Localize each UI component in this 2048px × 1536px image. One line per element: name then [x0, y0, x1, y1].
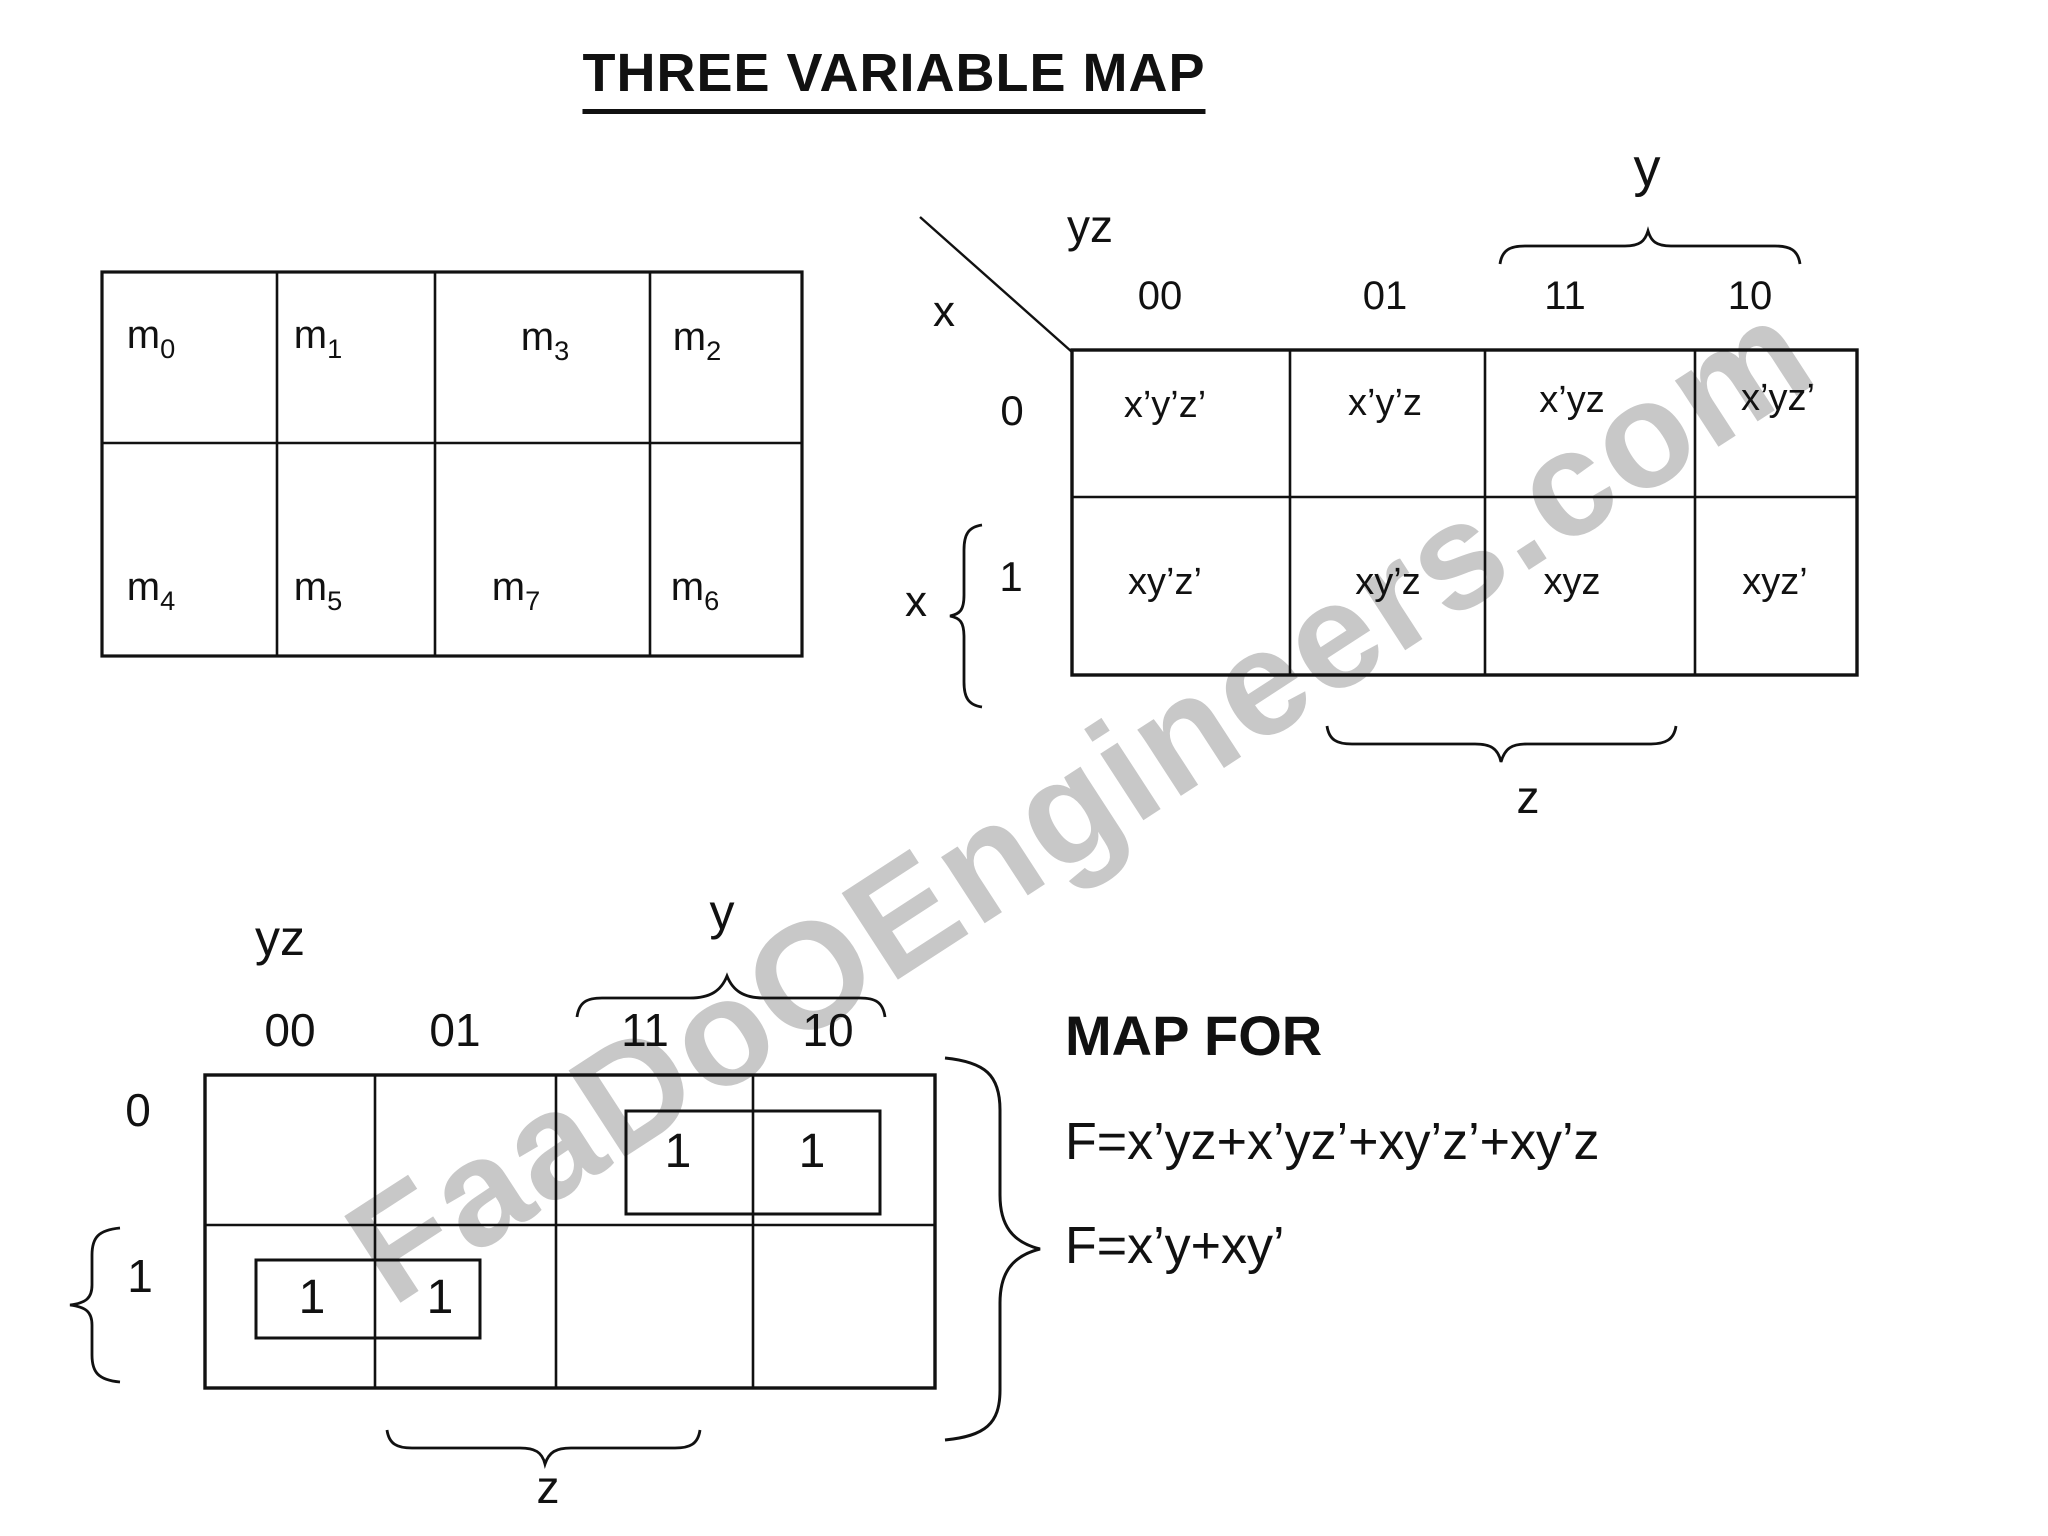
top-kmap-cell-001: x’y’z [1348, 384, 1422, 422]
top-x-brace [950, 525, 982, 707]
minterm-sub: 3 [554, 335, 569, 366]
minterm-m0: m0 [127, 315, 175, 355]
top-kmap-cell-000: x’y’z’ [1124, 386, 1206, 424]
top-z-brace [1327, 726, 1676, 762]
minterm-base: m [294, 565, 327, 609]
top-kmap-row-0: 0 [1000, 390, 1023, 432]
bottom-kmap-one-100: 1 [299, 1274, 326, 1322]
bottom-kmap-row-0: 0 [125, 1087, 151, 1133]
minterm-m6: m6 [671, 567, 719, 607]
minterm-m1: m1 [294, 315, 342, 355]
bottom-kmap-z-brace-label: z [537, 1464, 560, 1510]
top-kmap-cell-011: x’yz [1539, 381, 1604, 419]
top-kmap-col-00: 00 [1138, 276, 1183, 316]
top-kmap-cell-101: xy’z [1355, 563, 1420, 601]
top-kmap-x-header-label: x [933, 290, 955, 334]
top-y-brace [1500, 231, 1800, 264]
top-kmap-z-brace-label: z [1517, 774, 1540, 820]
bottom-kmap-one-010: 1 [799, 1128, 826, 1176]
minterm-sub: 6 [704, 585, 719, 616]
minterm-base: m [671, 565, 704, 609]
bottom-kmap-one-011: 1 [665, 1128, 692, 1176]
minterm-m2: m2 [673, 317, 721, 357]
bottom-kmap-col-10: 10 [802, 1007, 853, 1053]
slide-three-variable-map: FaaDoOEngineers.com [0, 0, 2048, 1536]
top-kmap-cell-010: x’yz’ [1741, 379, 1815, 417]
result-brace [945, 1058, 1040, 1440]
bottom-kmap-corner-label: yz [255, 913, 305, 963]
minterm-sub: 4 [160, 585, 175, 616]
minterm-sub: 1 [327, 333, 342, 364]
minterm-sub: 5 [327, 585, 342, 616]
page-title: THREE VARIABLE MAP [582, 42, 1205, 114]
minterm-m3: m3 [521, 317, 569, 357]
top-kmap-cell-111: xyz [1544, 563, 1601, 601]
bottom-kmap-one-101: 1 [427, 1274, 454, 1322]
minterm-m7: m7 [492, 567, 540, 607]
bottom-kmap-col-00: 00 [264, 1007, 315, 1053]
top-kmap-y-brace-label: y [1634, 141, 1661, 195]
bottom-kmap-col-11: 11 [621, 1007, 669, 1053]
top-kmap-cell-100: xy’z’ [1128, 563, 1202, 601]
minterm-sub: 0 [160, 333, 175, 364]
minterm-base: m [521, 315, 554, 359]
bottom-x-brace [70, 1228, 120, 1382]
top-kmap-col-01: 01 [1363, 276, 1408, 316]
top-kmap-corner-label: yz [1067, 203, 1113, 249]
map-for-heading: MAP FOR [1065, 1008, 1322, 1064]
minterm-base: m [294, 313, 327, 357]
top-kmap-col-11: 11 [1544, 276, 1586, 316]
top-kmap-x-brace-label: x [905, 580, 927, 624]
bottom-kmap-col-01: 01 [429, 1007, 480, 1053]
map-for-equation-simplified: F=x’y+xy’ [1065, 1220, 1285, 1272]
minterm-m5: m5 [294, 567, 342, 607]
top-kmap-col-10: 10 [1728, 276, 1773, 316]
bottom-kmap-border [205, 1075, 935, 1388]
bottom-kmap-row-1: 1 [127, 1253, 153, 1299]
top-kmap-row-1: 1 [999, 556, 1022, 598]
minterm-base: m [492, 565, 525, 609]
minterm-sub: 2 [706, 335, 721, 366]
minterm-base: m [127, 313, 160, 357]
map-for-equation-sop: F=x’yz+x’yz’+xy’z’+xy’z [1065, 1116, 1600, 1168]
minterm-sub: 7 [525, 585, 540, 616]
minterm-base: m [127, 565, 160, 609]
bottom-z-brace [387, 1430, 700, 1464]
minterm-base: m [673, 315, 706, 359]
minterm-m4: m4 [127, 567, 175, 607]
bottom-kmap-y-brace-label: y [710, 887, 735, 937]
top-kmap-cell-110: xyz’ [1742, 563, 1807, 601]
